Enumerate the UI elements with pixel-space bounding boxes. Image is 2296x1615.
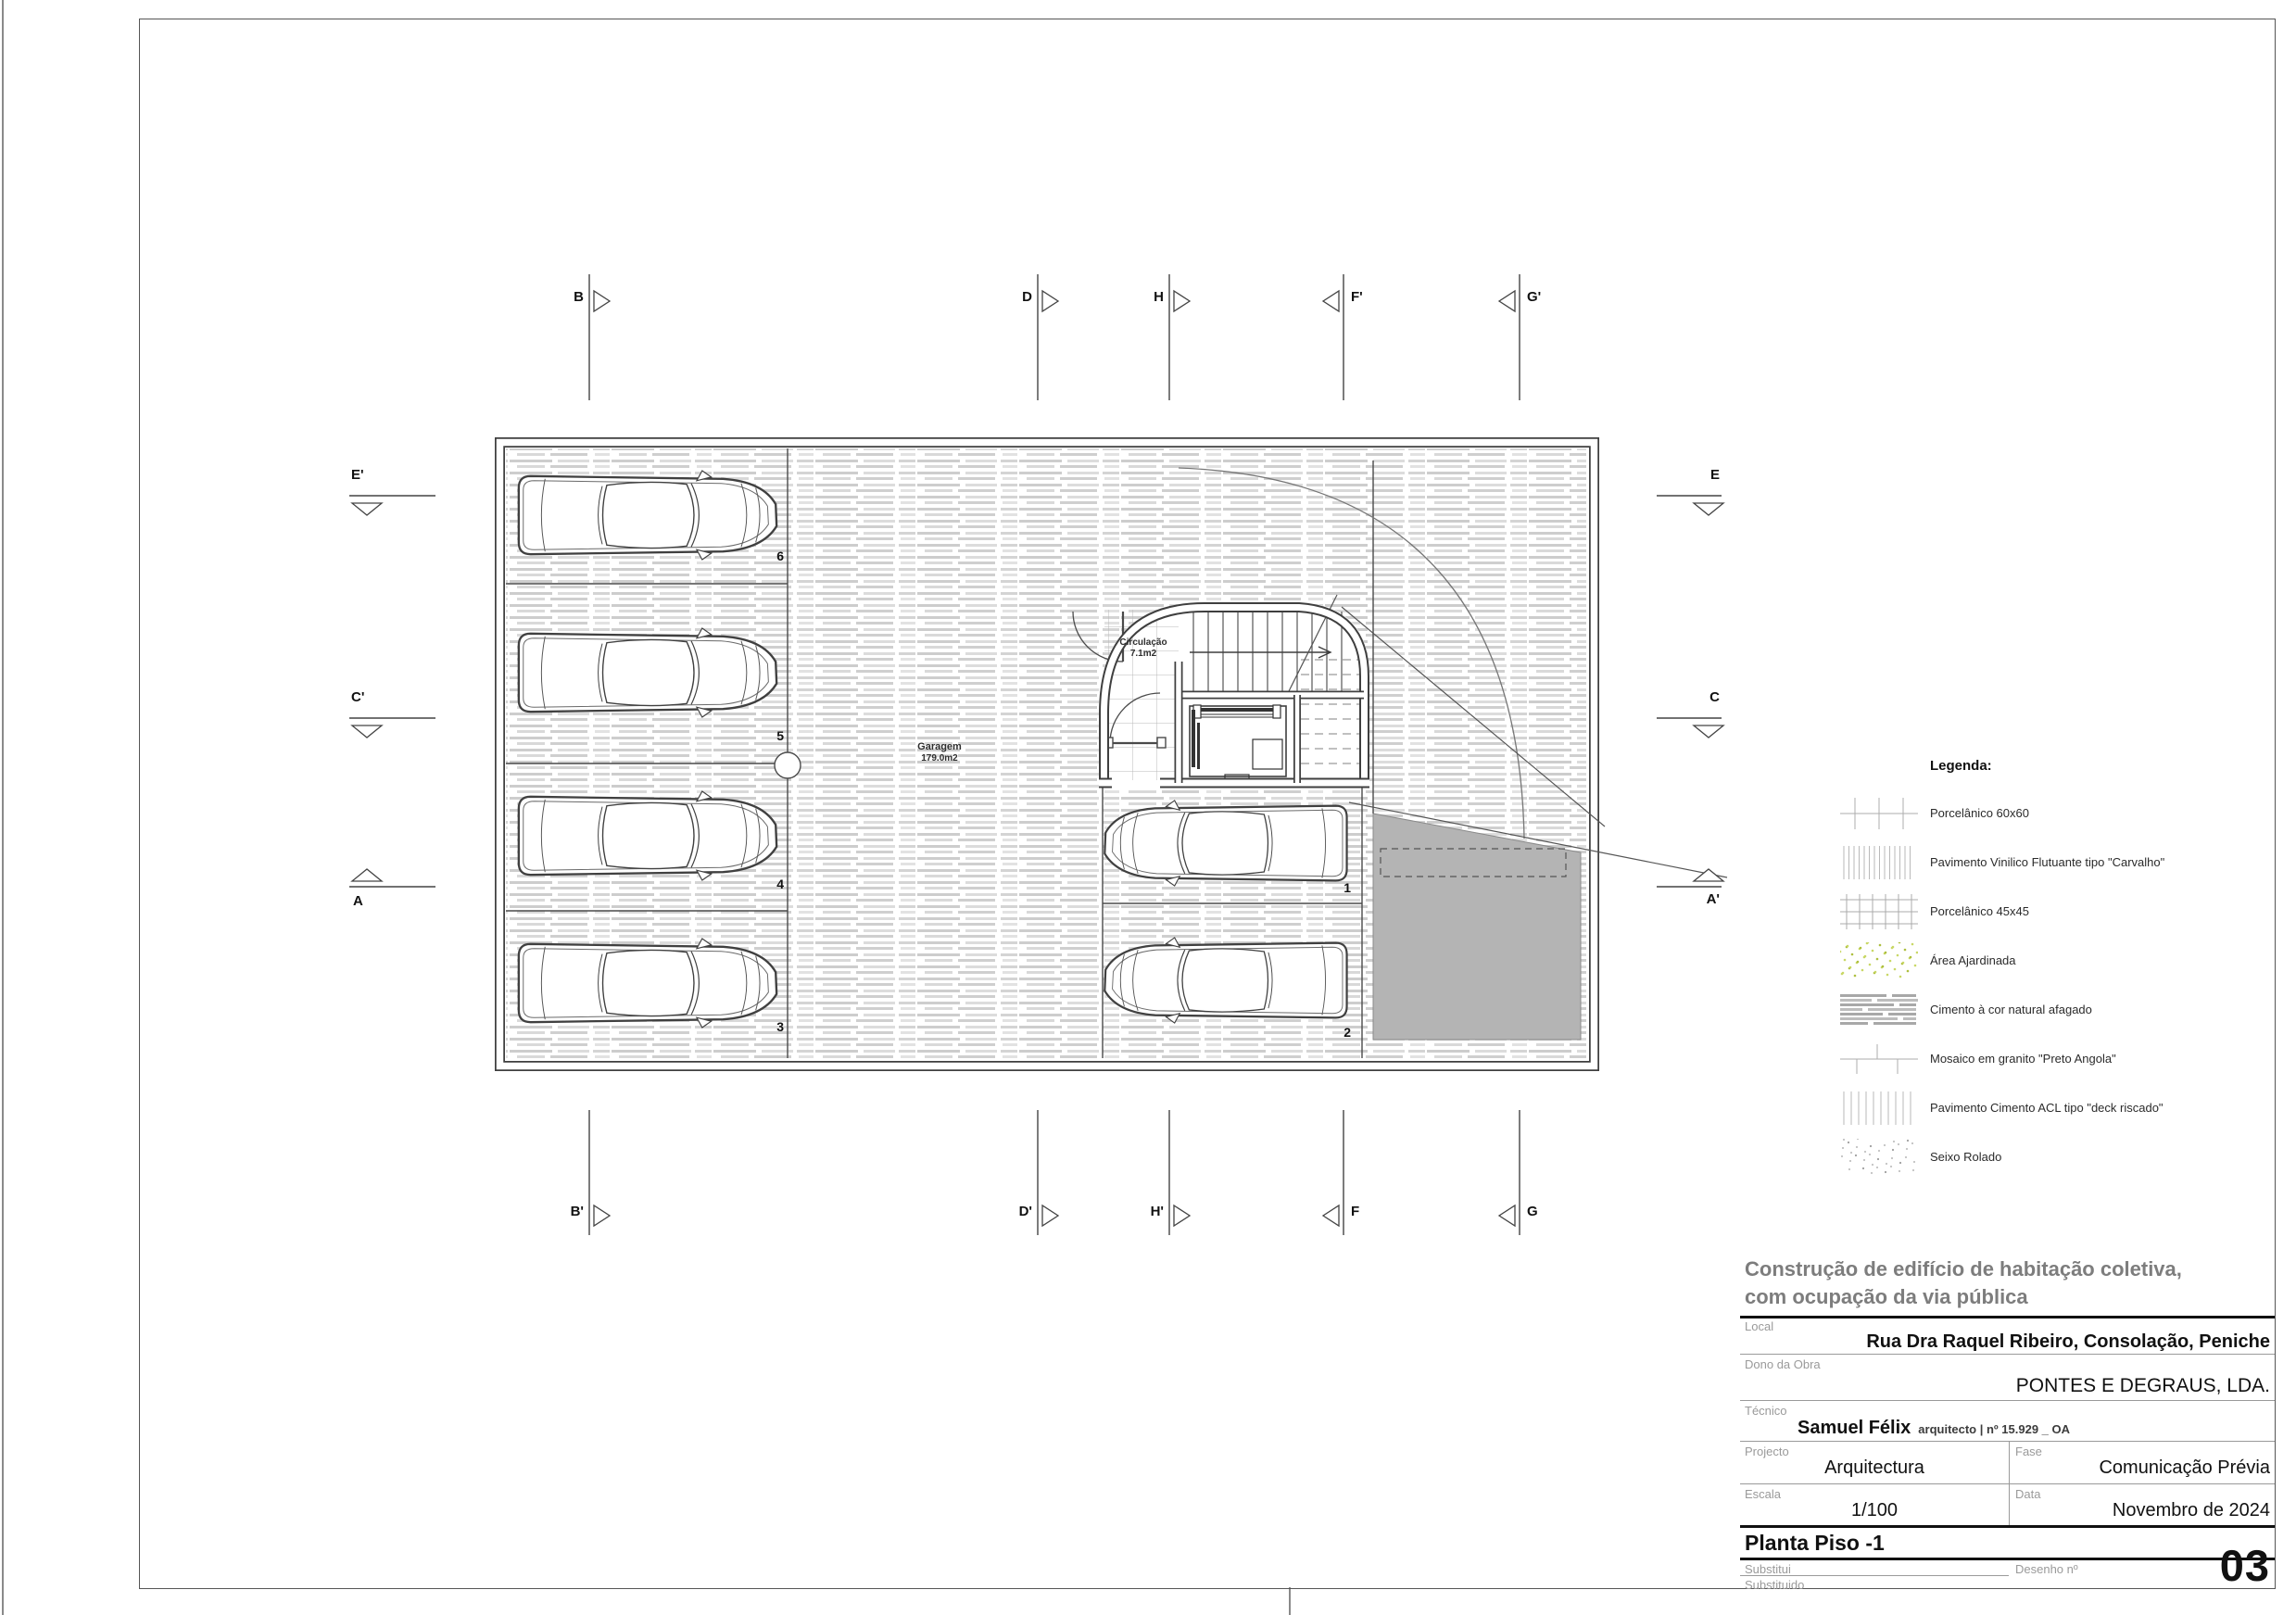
room-label-circulacao: Circulação 7.1m2 (1088, 637, 1199, 660)
data-value: Novembro de 2024 (2113, 1500, 2270, 1521)
section-marker-top-B: B (547, 289, 584, 305)
tecnico-value: Samuel Félixarquitecto | nº 15.929 _ OA (1798, 1418, 2070, 1439)
section-marker-right-E: E (1666, 467, 1720, 483)
section-marker-top-G': G' (1527, 289, 1541, 305)
legend-label-porcelanico-60x60: Porcelânico 60x60 (1930, 793, 2029, 834)
substitui-label: Substitui (1745, 1562, 1791, 1576)
dono-obra-label: Dono da Obra (1745, 1357, 1821, 1371)
legend-title: Legenda: (1930, 758, 1992, 774)
legend-label-seixo-rolado: Seixo Rolado (1930, 1137, 2001, 1178)
parking-space-number-3: 3 (754, 1019, 784, 1034)
tecnico-detail: arquitecto | nº 15.929 _ OA (1918, 1422, 2070, 1436)
projecto-label: Projecto (1745, 1445, 1789, 1458)
local-label: Local (1745, 1319, 1773, 1333)
section-marker-top-D: D (995, 289, 1032, 305)
legend-swatch-deck-riscado (1840, 1090, 1922, 1130)
substituido-label: Substituido (1745, 1578, 1804, 1592)
section-marker-bottom-D': D' (995, 1204, 1032, 1219)
legend-label-cimento-afagado: Cimento à cor natural afagado (1930, 990, 2092, 1030)
drawing-name: Planta Piso -1 (1745, 1531, 1885, 1556)
fase-value: Comunicação Prévia (2099, 1457, 2270, 1479)
parking-space-number-5: 5 (754, 728, 784, 743)
section-marker-left-E': E' (351, 467, 364, 483)
legend-swatch-seixo-rolado (1840, 1139, 1922, 1180)
drawing-sheet: Garagem 179.0m2 Circulação 7.1m2 Legenda… (0, 0, 2296, 1615)
room-label-garagem: Garagem 179.0m2 (884, 741, 995, 764)
tecnico-name: Samuel Félix (1798, 1418, 1911, 1438)
legend-label-mosaico-granito: Mosaico em granito "Preto Angola" (1930, 1039, 2116, 1079)
legend-label-deck-riscado: Pavimento Cimento ACL tipo "deck riscado… (1930, 1088, 2164, 1129)
legend-swatch-mosaico-granito (1840, 1041, 1922, 1081)
legend-swatch-porcelanico-60x60 (1840, 795, 1922, 836)
section-marker-top-F': F' (1351, 289, 1363, 305)
section-marker-right-C: C (1666, 689, 1720, 705)
desenho-label: Desenho nº (2015, 1562, 2078, 1576)
dono-obra-value: PONTES E DEGRAUS, LDA. (2016, 1375, 2270, 1397)
legend-label-porcelanico-45x45: Porcelânico 45x45 (1930, 891, 2029, 932)
legend-swatch-vinilico-carvalho (1840, 844, 1922, 885)
local-value: Rua Dra Raquel Ribeiro, Consolação, Peni… (1866, 1331, 2270, 1353)
escala-value: 1/100 (1740, 1500, 2009, 1521)
section-marker-bottom-F: F (1351, 1204, 1359, 1219)
legend-swatch-area-ajardinada (1840, 942, 1922, 983)
circulation-tile-floor (1104, 610, 1179, 780)
parking-space-number-6: 6 (754, 549, 784, 563)
section-marker-left-A: A (353, 893, 363, 909)
drawing-number: 03 (2220, 1540, 2270, 1591)
section-marker-right-A': A' (1666, 891, 1720, 907)
data-label: Data (2015, 1487, 2040, 1501)
section-marker-left-C': C' (351, 689, 364, 705)
projecto-value: Arquitectura (1740, 1457, 2009, 1479)
project-title-line2: com ocupação da via pública (1745, 1284, 2028, 1310)
parking-space-number-2: 2 (1321, 1025, 1351, 1040)
fase-label: Fase (2015, 1445, 2042, 1458)
project-title-line1: Construção de edifício de habitação cole… (1745, 1256, 2182, 1282)
section-marker-top-H: H (1127, 289, 1164, 305)
section-marker-bottom-G: G (1527, 1204, 1538, 1219)
legend-swatch-cimento-afagado (1840, 991, 1922, 1032)
parking-space-number-1: 1 (1321, 880, 1351, 895)
section-marker-bottom-B': B' (547, 1204, 584, 1219)
parking-space-number-4: 4 (754, 877, 784, 891)
tecnico-label: Técnico (1745, 1404, 1787, 1418)
legend-label-vinilico-carvalho: Pavimento Vinilico Flutuante tipo "Carva… (1930, 842, 2164, 883)
section-marker-bottom-H': H' (1127, 1204, 1164, 1219)
structural-column (775, 752, 801, 778)
escala-label: Escala (1745, 1487, 1781, 1501)
legend-label-area-ajardinada: Área Ajardinada (1930, 940, 2016, 981)
ramp-area (1373, 814, 1581, 1040)
elevator (1190, 705, 1286, 780)
legend-swatch-porcelanico-45x45 (1840, 893, 1922, 934)
